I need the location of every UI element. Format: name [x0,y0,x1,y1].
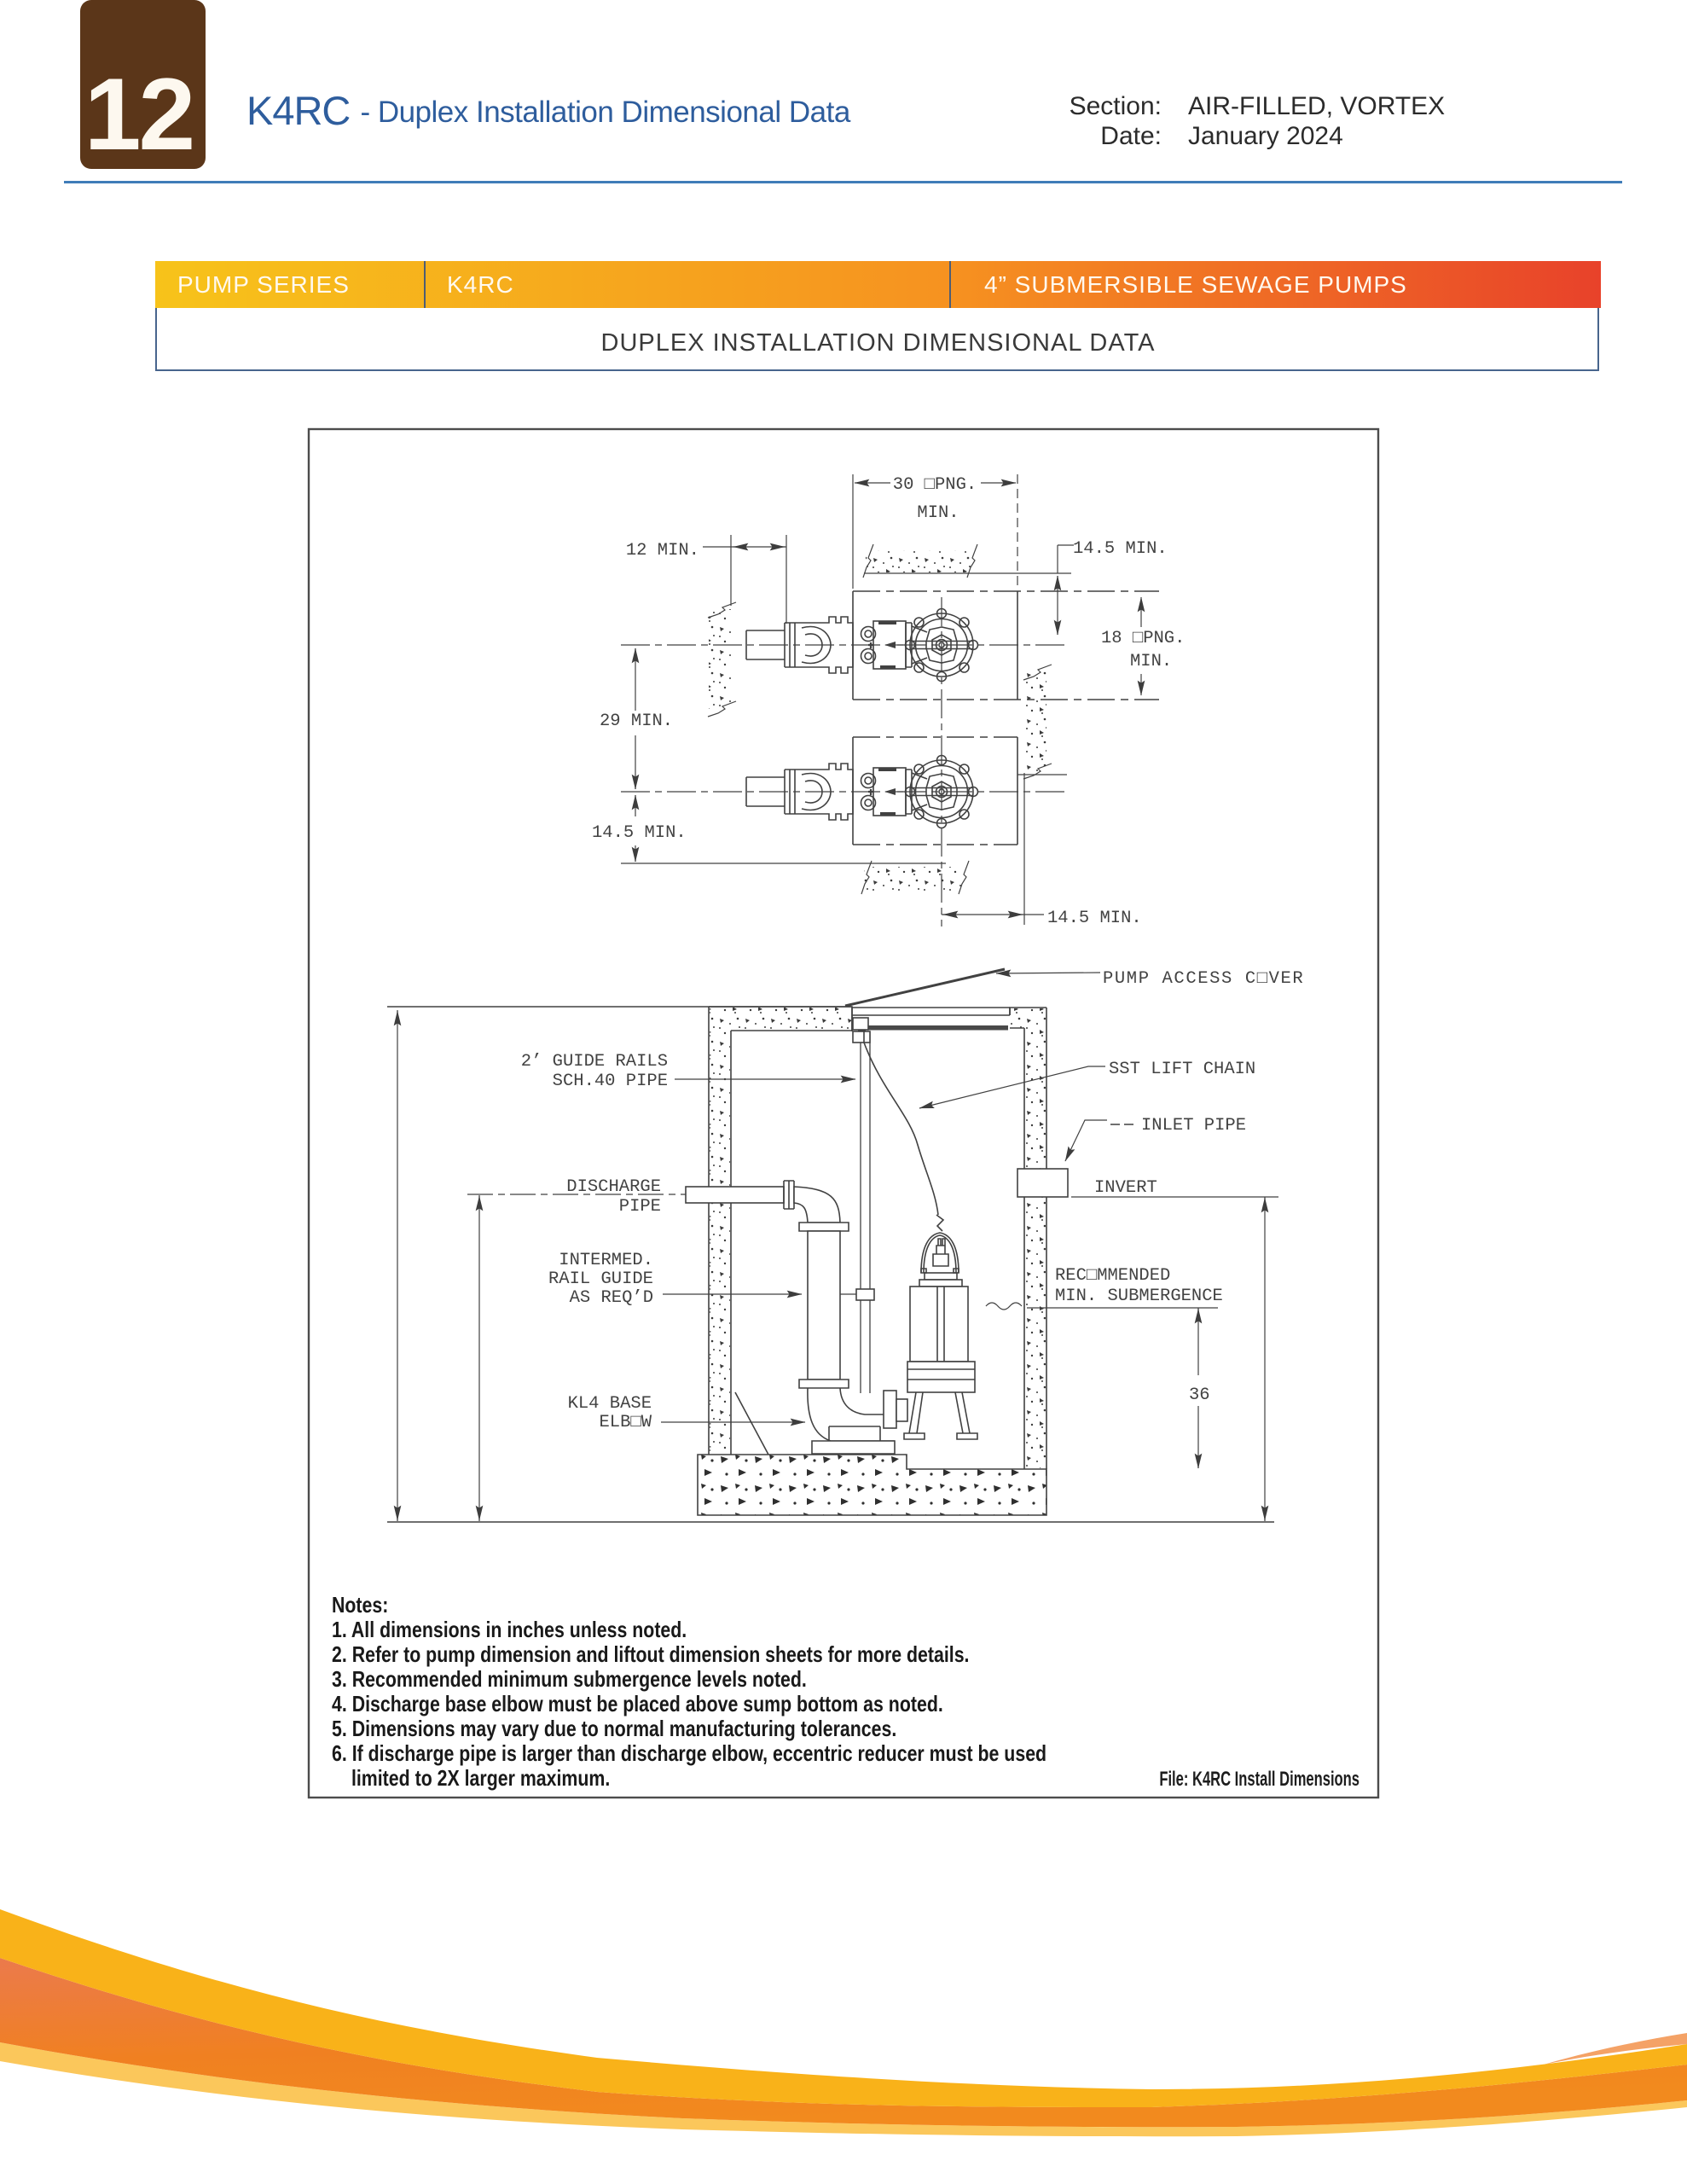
svg-text:PIPE: PIPE [619,1197,661,1217]
svg-text:SST LIFT CHAIN: SST LIFT CHAIN [1109,1060,1255,1079]
svg-text:REC□MMENDED: REC□MMENDED [1055,1266,1170,1286]
svg-text:14.5 MIN.: 14.5 MIN. [1047,909,1142,928]
svg-text:SCH.40 PIPE: SCH.40 PIPE [553,1072,668,1091]
svg-text:INTERMED.: INTERMED. [559,1251,653,1270]
svg-text:MIN.: MIN. [1130,652,1172,671]
svg-text:DISCHARGE: DISCHARGE [566,1177,661,1197]
svg-text:36: 36 [1189,1385,1210,1405]
svg-text:29 MIN.: 29 MIN. [600,712,673,731]
svg-text:INVERT: INVERT [1094,1178,1157,1198]
svg-text:PUMP ACCESS C□VER: PUMP ACCESS C□VER [1103,969,1304,989]
svg-text:12 MIN.: 12 MIN. [626,541,699,561]
svg-text:MIN. SUBMERGENCE: MIN. SUBMERGENCE [1055,1287,1223,1306]
svg-text:ELB□W: ELB□W [599,1413,652,1432]
svg-text:RAIL GUIDE: RAIL GUIDE [548,1269,653,1289]
svg-text:MIN.: MIN. [917,503,959,523]
svg-text:KL4 BASE: KL4 BASE [568,1394,652,1414]
svg-text:14.5 MIN.: 14.5 MIN. [1073,539,1168,559]
svg-text:30 □PNG.: 30 □PNG. [893,475,977,495]
svg-text:AS REQ’D: AS REQ’D [570,1288,653,1308]
svg-text:18 □PNG.: 18 □PNG. [1101,629,1185,648]
svg-text:INLET PIPE: INLET PIPE [1141,1116,1246,1136]
svg-text:2’ GUIDE RAILS: 2’ GUIDE RAILS [521,1052,668,1072]
svg-text:14.5 MIN.: 14.5 MIN. [592,823,687,843]
